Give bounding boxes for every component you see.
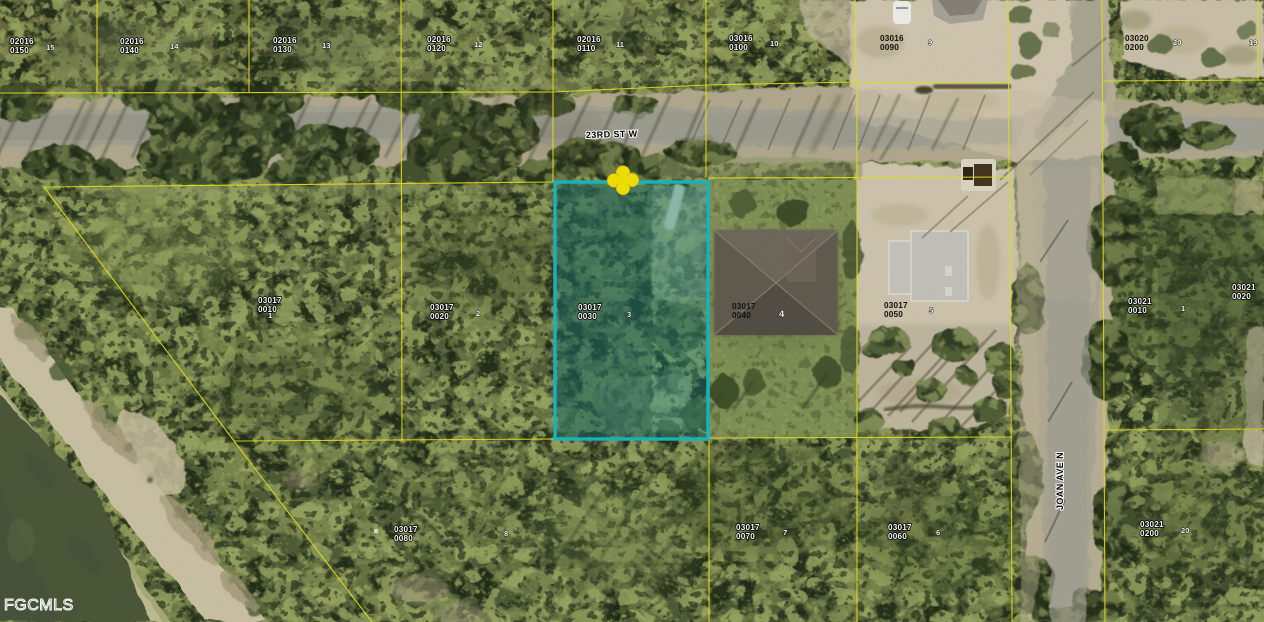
svg-text:FGCMLS: FGCMLS: [4, 597, 74, 614]
